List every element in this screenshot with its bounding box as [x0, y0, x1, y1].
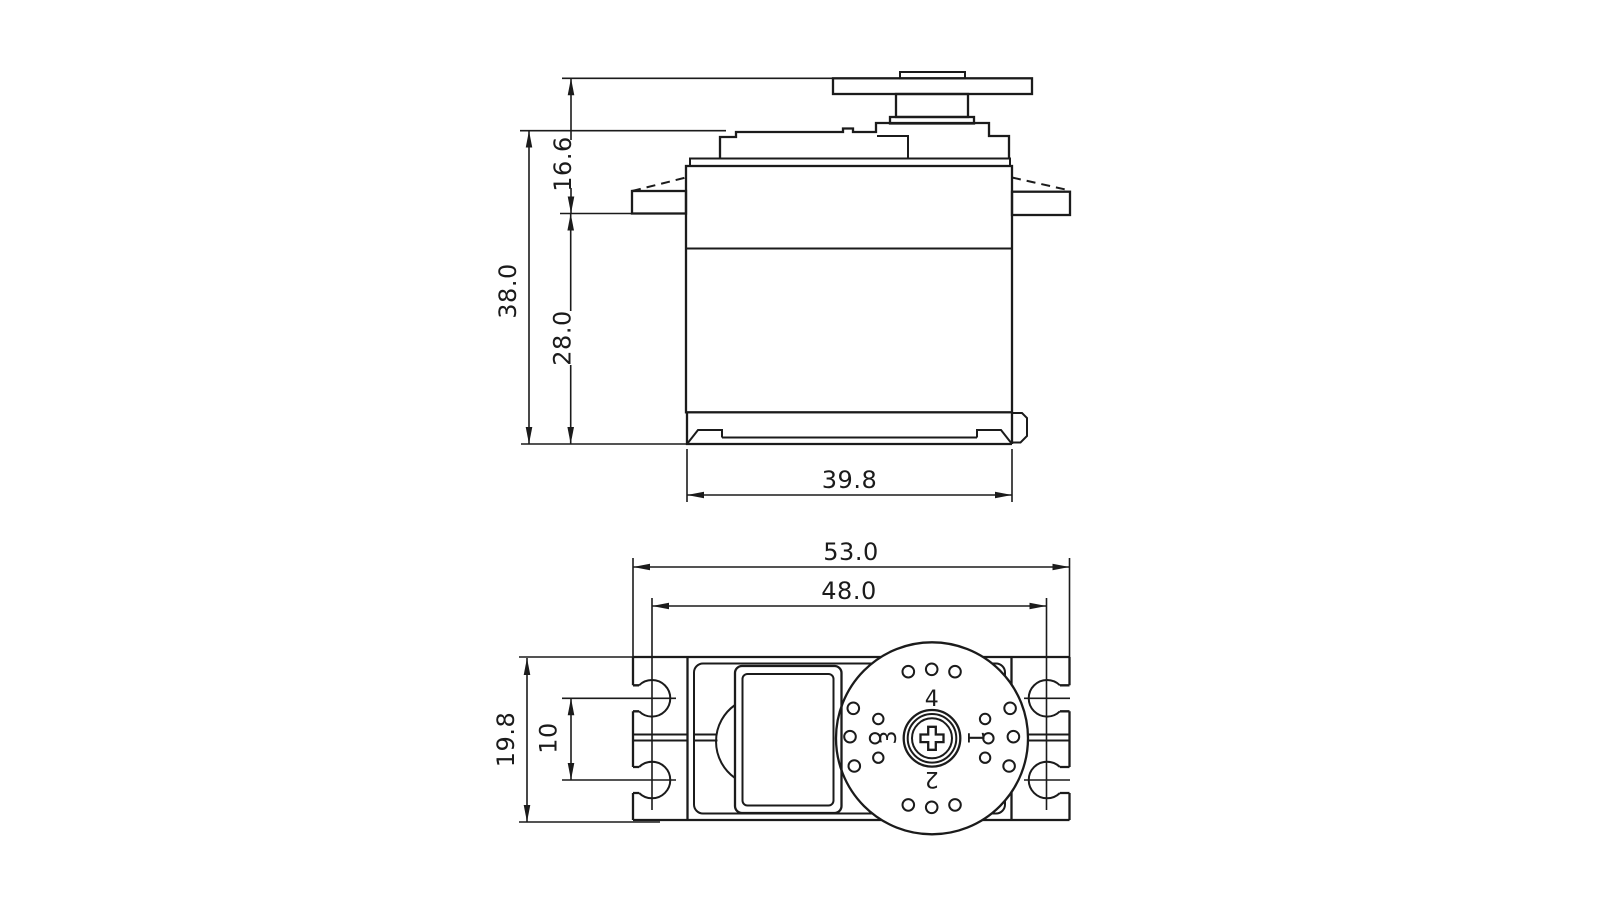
horn-hole [949, 799, 961, 811]
horn-hub [904, 710, 961, 767]
horn-hole [926, 664, 938, 676]
bottom-cap-right-tab [1012, 413, 1027, 443]
mounting-tab-left [632, 191, 686, 214]
drawing-page: 16.6 28.0 38.0 39.8 [0, 0, 1600, 900]
dim-39-8-label: 39.8 [822, 466, 877, 494]
horn-hole [980, 714, 990, 724]
bottom-cap-outline [687, 412, 1012, 444]
mounting-rib-left-dashed [632, 178, 686, 192]
horn-hole [848, 703, 860, 715]
horn-number-2: 2 [925, 766, 939, 791]
horn-hole [844, 731, 856, 743]
horn-number-3: 3 [877, 731, 902, 745]
mounting-tab-right [1012, 192, 1070, 215]
mounting-ear-right [1029, 657, 1070, 820]
horn-hole [903, 666, 915, 678]
horn-hole [903, 799, 915, 811]
ear-left-edge [633, 657, 639, 820]
dim-28-label: 28.0 [549, 310, 577, 365]
ear-right-edge [1060, 657, 1070, 820]
horn-number-1: 1 [962, 731, 987, 745]
motor-silhouette-arc [716, 705, 735, 778]
horn-hole [1008, 731, 1020, 743]
horn-hole [1004, 703, 1016, 715]
plan-view: 4 1 2 3 53.0 48.0 19.8 10 [492, 538, 1070, 834]
horn-hole [926, 802, 938, 814]
technical-drawing-canvas: 16.6 28.0 38.0 39.8 [0, 0, 1600, 900]
dim-38-label: 38.0 [494, 263, 522, 318]
shaft-hub [896, 94, 968, 117]
dim-53-label: 53.0 [823, 538, 878, 566]
dim-10-label: 10 [535, 722, 563, 754]
dim-48-label: 48.0 [821, 577, 876, 605]
horn-hole [849, 760, 861, 772]
horn-side-profile [833, 78, 1032, 94]
gear-cover-outer [735, 666, 842, 813]
horn-hole [980, 753, 990, 763]
horn-hole [1003, 760, 1015, 772]
dim-16-6-label: 16.6 [549, 136, 577, 191]
horn-hole [873, 714, 883, 724]
dim-19-8-label: 19.8 [492, 712, 520, 767]
gear-cover-inner [743, 674, 834, 806]
mounting-rib-right-dashed [1012, 178, 1070, 191]
front-view: 16.6 28.0 38.0 39.8 [494, 72, 1070, 502]
horn-hole [949, 666, 961, 678]
horn-screw-boss [900, 72, 965, 78]
horn-number-4: 4 [925, 687, 939, 712]
bottom-cap-feet [687, 430, 1012, 444]
hole-centerlines-left [562, 698, 676, 780]
horn-hole [873, 753, 883, 763]
servo-case-front [686, 166, 1012, 412]
gear-housing-profile [720, 123, 1009, 159]
gear-housing-seam [877, 136, 908, 159]
